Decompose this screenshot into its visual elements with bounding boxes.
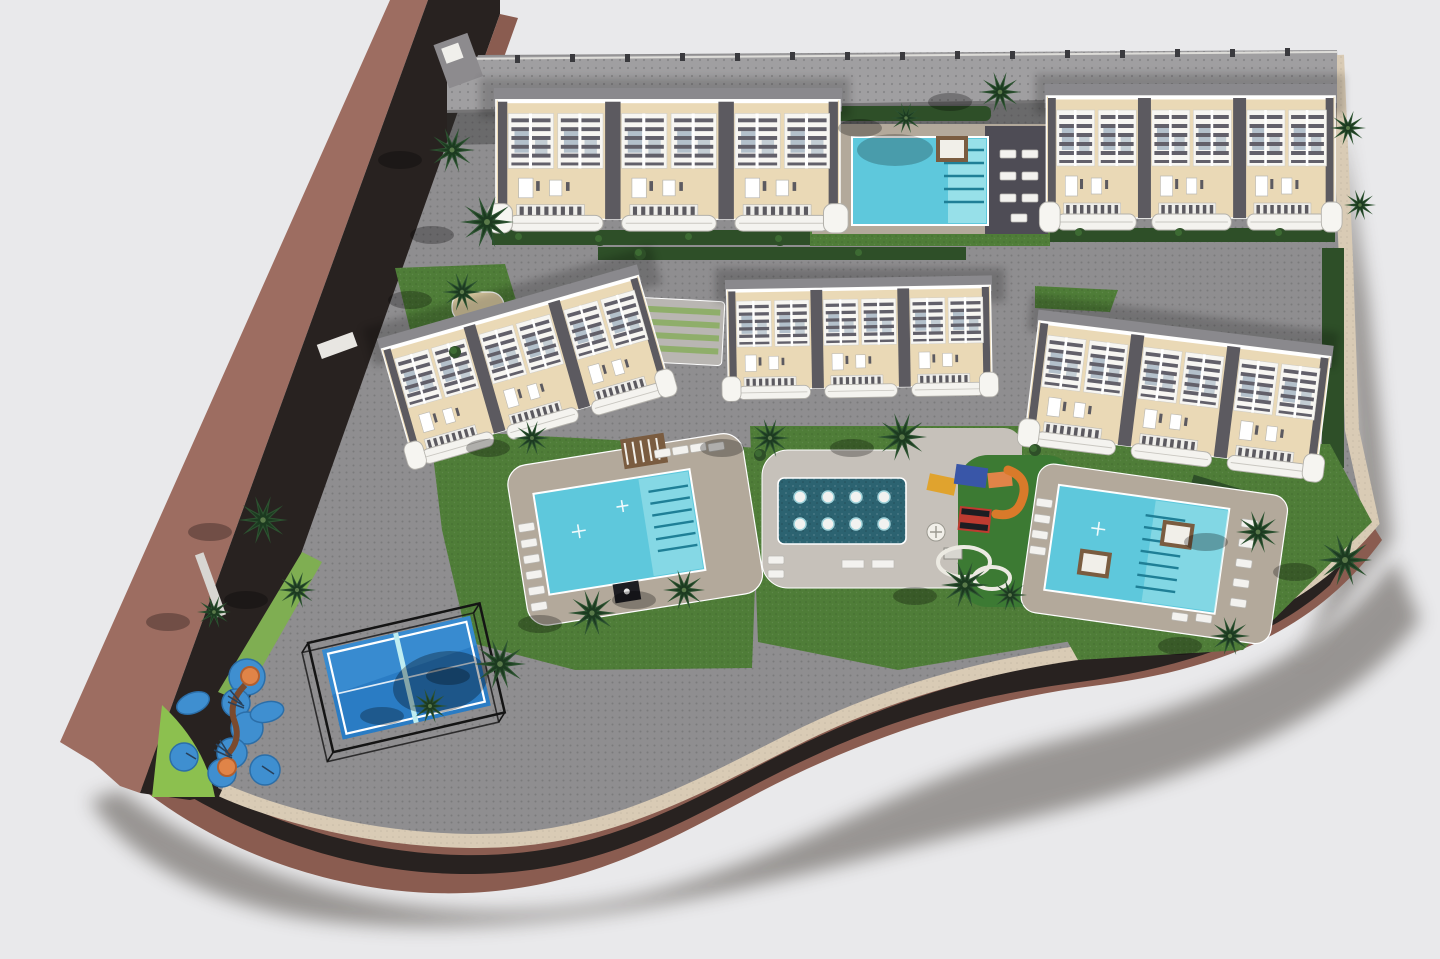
right-pool-daybed-1 [1077,548,1112,578]
site-plan-render [0,0,1440,959]
splash-feature-2 [218,758,236,776]
jet-pool [778,478,906,544]
block-4-mid-center [715,268,1005,401]
top-pool-daybed [936,136,968,162]
block-1-top-left [480,78,850,233]
block-2-top-right [1035,74,1345,232]
splash-feature-1 [241,667,259,685]
